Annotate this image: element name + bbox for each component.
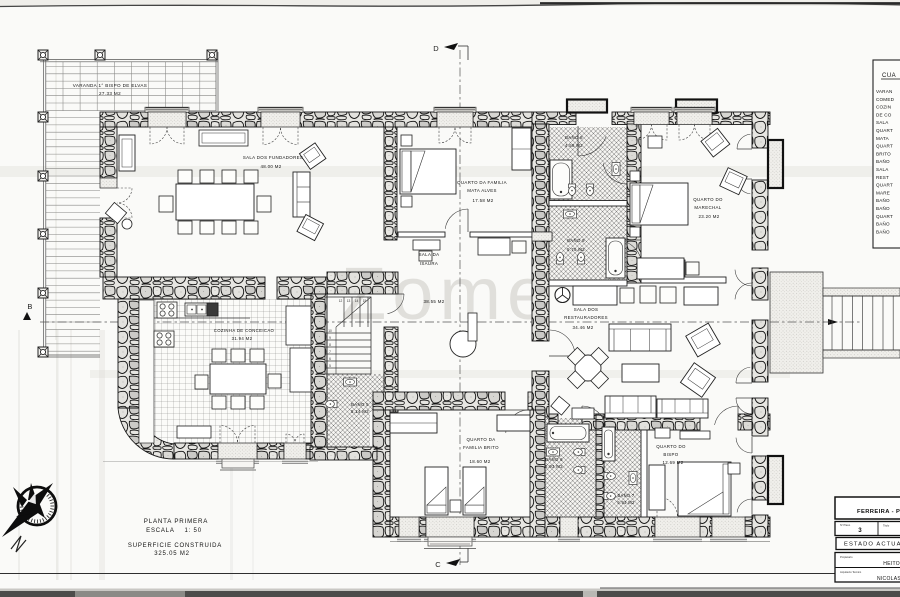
svg-text:12: 12 xyxy=(339,299,343,303)
svg-text:VARAN: VARAN xyxy=(876,89,893,94)
svg-text:MARECHAL: MARECHAL xyxy=(694,205,721,210)
svg-text:FERREIRA - PA: FERREIRA - PA xyxy=(857,509,900,515)
svg-text:31.94 M2: 31.94 M2 xyxy=(232,336,253,341)
svg-text:BAÑO: BAÑO xyxy=(876,228,890,234)
svg-text:BAÑO: BAÑO xyxy=(876,158,890,164)
svg-text:7: 7 xyxy=(329,350,331,354)
svg-text:RESTAURADORES: RESTAURADORES xyxy=(564,315,608,320)
svg-text:BISPO: BISPO xyxy=(663,452,678,457)
svg-text:BRITO: BRITO xyxy=(876,151,891,156)
svg-text:17.58 M2: 17.58 M2 xyxy=(472,198,493,203)
svg-text:PLANTA PRIMERA: PLANTA PRIMERA xyxy=(144,518,208,525)
svg-text:5.93 M2: 5.93 M2 xyxy=(617,500,635,505)
svg-text:QUART: QUART xyxy=(876,128,893,133)
svg-text:38.55 M2: 38.55 M2 xyxy=(423,299,444,304)
svg-text:NICOLAS: NICOLAS xyxy=(877,576,900,582)
svg-text:SALA DA: SALA DA xyxy=(419,252,440,257)
svg-text:SALA DOS FUNDADORES: SALA DOS FUNDADORES xyxy=(243,155,303,160)
svg-text:10: 10 xyxy=(328,329,332,333)
svg-text:FAMILIA BRITO: FAMILIA BRITO xyxy=(463,445,499,450)
svg-text:VARANDA 1° BISPO DE ELVAS: VARANDA 1° BISPO DE ELVAS xyxy=(73,83,147,88)
svg-text:34.46 M2: 34.46 M2 xyxy=(572,325,593,330)
svg-text:23.20 M2: 23.20 M2 xyxy=(698,214,719,219)
svg-text:13: 13 xyxy=(347,299,351,303)
svg-text:ESTADO ACTUAL: ESTADO ACTUAL xyxy=(844,542,900,548)
svg-text:COZINHA DE CONCEICAO: COZINHA DE CONCEICAO xyxy=(214,328,275,333)
svg-text:QUARTO DO: QUARTO DO xyxy=(693,197,723,202)
svg-text:QUARTO DA FAMILIA: QUARTO DA FAMILIA xyxy=(457,180,507,185)
svg-text:12.69 M2: 12.69 M2 xyxy=(662,460,683,465)
svg-text:9: 9 xyxy=(329,336,331,340)
svg-text:MATA: MATA xyxy=(876,136,890,141)
svg-text:5.75 M2: 5.75 M2 xyxy=(567,247,585,252)
svg-text:HEITO: HEITO xyxy=(883,561,900,567)
svg-text:D: D xyxy=(433,44,439,53)
svg-text:Propietario: Propietario xyxy=(840,555,853,559)
svg-text:QUARTO DA: QUARTO DA xyxy=(466,437,495,442)
svg-text:SUPERFICIE CONSTRUIDA: SUPERFICIE CONSTRUIDA xyxy=(128,543,222,549)
svg-text:ISAURA: ISAURA xyxy=(420,261,438,266)
svg-text:SALA DOS: SALA DOS xyxy=(574,307,599,312)
svg-text:8: 8 xyxy=(329,343,331,347)
svg-text:BAÑO: BAÑO xyxy=(876,205,890,211)
svg-text:BAÑO 7: BAÑO 7 xyxy=(617,493,634,498)
svg-text:QUART: QUART xyxy=(876,214,893,219)
svg-text:MARE: MARE xyxy=(876,190,890,195)
svg-text:DE CO: DE CO xyxy=(876,112,892,117)
svg-text:SALA: SALA xyxy=(876,120,889,125)
svg-text:5: 5 xyxy=(329,364,331,368)
svg-text:B: B xyxy=(27,302,32,311)
svg-text:Titulo: Titulo xyxy=(883,524,890,528)
svg-text:MATA ALVES: MATA ALVES xyxy=(467,188,497,193)
svg-text:14: 14 xyxy=(355,299,359,303)
svg-text:6: 6 xyxy=(329,357,331,361)
svg-text:C: C xyxy=(435,560,441,569)
svg-text:COMED: COMED xyxy=(876,97,895,102)
svg-text:BAÑO: BAÑO xyxy=(876,197,890,203)
svg-text:BAÑO 6: BAÑO 6 xyxy=(545,457,563,462)
svg-text:BAÑO 5: BAÑO 5 xyxy=(351,402,369,407)
svg-text:ESCALA 1: 50: ESCALA 1: 50 xyxy=(146,528,202,534)
svg-text:Nº Plano: Nº Plano xyxy=(840,523,851,527)
svg-text:BAÑO 8: BAÑO 8 xyxy=(565,135,583,140)
svg-text:COZIN: COZIN xyxy=(876,105,891,110)
svg-text:QUART: QUART xyxy=(876,183,893,188)
svg-text:18.60 M2: 18.60 M2 xyxy=(469,459,490,464)
svg-text:QUARTO DO: QUARTO DO xyxy=(656,444,686,449)
svg-text:Arquitecto Tecnico: Arquitecto Tecnico xyxy=(840,570,862,574)
svg-text:5.14 M2: 5.14 M2 xyxy=(351,409,369,414)
svg-text:3: 3 xyxy=(858,527,862,534)
svg-text:CUA: CUA xyxy=(882,73,896,79)
svg-text:48.00 M2: 48.00 M2 xyxy=(260,164,281,169)
svg-text:QUART: QUART xyxy=(876,144,893,149)
svg-text:BAÑO: BAÑO xyxy=(876,221,890,227)
svg-text:325.05 M2: 325.05 M2 xyxy=(154,551,190,557)
svg-text:BAÑO 9: BAÑO 9 xyxy=(567,238,585,243)
svg-text:REST: REST xyxy=(876,175,889,180)
svg-text:SALA: SALA xyxy=(876,167,889,172)
svg-text:27.33 M2: 27.33 M2 xyxy=(99,91,121,96)
svg-text:4.58 M2: 4.58 M2 xyxy=(565,143,583,148)
svg-text:5.93 M2: 5.93 M2 xyxy=(545,464,563,469)
